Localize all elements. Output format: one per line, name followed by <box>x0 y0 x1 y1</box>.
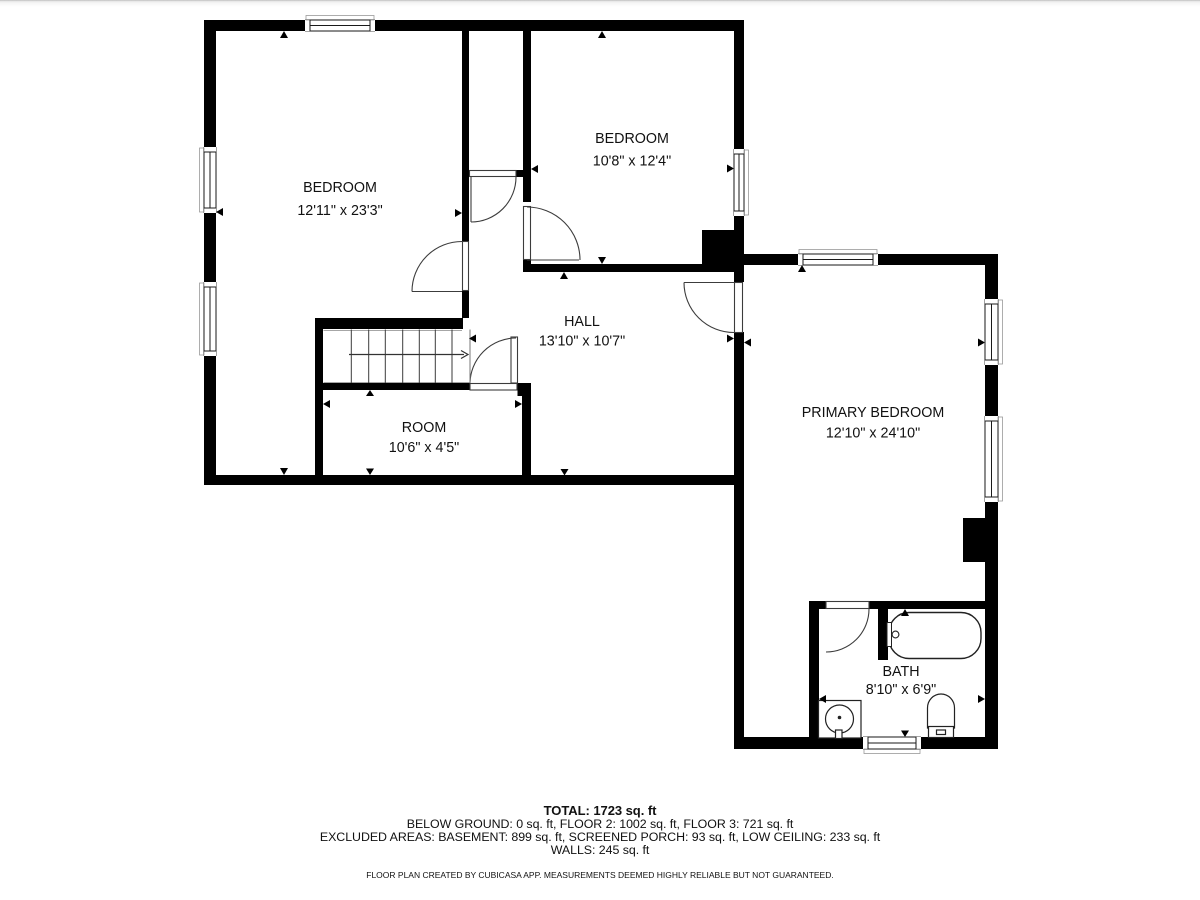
svg-text:13'10" x 10'7": 13'10" x 10'7" <box>539 334 625 350</box>
svg-text:12'11" x 23'3": 12'11" x 23'3" <box>297 203 382 219</box>
svg-text:10'6" x 4'5": 10'6" x 4'5" <box>389 440 459 456</box>
svg-text:BEDROOM: BEDROOM <box>595 131 669 147</box>
svg-text:BEDROOM: BEDROOM <box>303 180 377 196</box>
svg-text:HALL: HALL <box>564 314 600 330</box>
svg-text:10'8" x 12'4": 10'8" x 12'4" <box>593 154 671 170</box>
svg-text:BATH: BATH <box>882 664 919 680</box>
svg-text:ROOM: ROOM <box>402 420 446 436</box>
svg-text:PRIMARY BEDROOM: PRIMARY BEDROOM <box>802 405 944 421</box>
svg-text:12'10" x 24'10": 12'10" x 24'10" <box>826 426 920 442</box>
svg-text:8'10" x 6'9": 8'10" x 6'9" <box>866 682 936 698</box>
